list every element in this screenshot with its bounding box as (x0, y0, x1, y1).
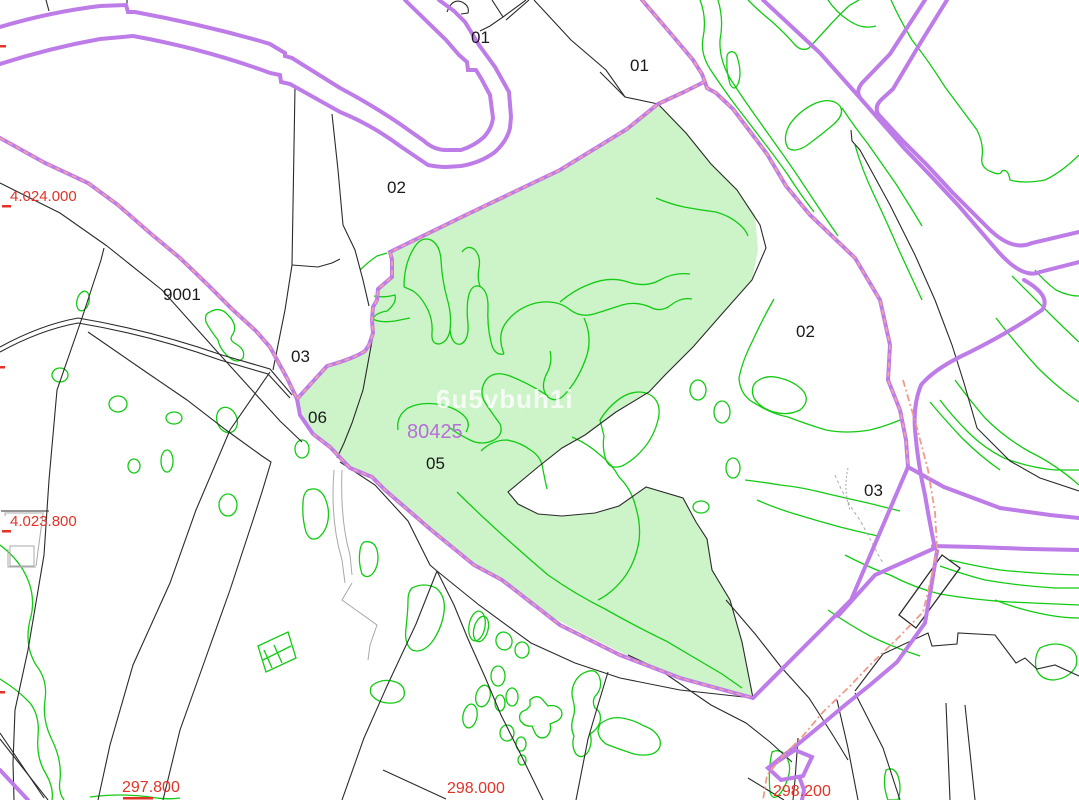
svg-text:4.024.000: 4.024.000 (10, 188, 77, 205)
svg-text:02: 02 (796, 322, 815, 341)
svg-text:03: 03 (291, 347, 310, 366)
svg-text:03: 03 (864, 481, 883, 500)
svg-text:6u5vbuh1i: 6u5vbuh1i (436, 384, 574, 414)
svg-text:297.800: 297.800 (122, 779, 180, 796)
svg-text:01: 01 (630, 56, 649, 75)
svg-text:06: 06 (308, 408, 327, 427)
svg-text:02: 02 (387, 178, 406, 197)
svg-text:05: 05 (426, 454, 445, 473)
svg-text:01: 01 (471, 28, 490, 47)
svg-text:4.023.800: 4.023.800 (10, 513, 77, 530)
svg-text:9001: 9001 (163, 285, 201, 304)
svg-text:80425: 80425 (407, 421, 463, 443)
svg-text:298.200: 298.200 (773, 783, 831, 800)
svg-text:298.000: 298.000 (447, 780, 505, 797)
